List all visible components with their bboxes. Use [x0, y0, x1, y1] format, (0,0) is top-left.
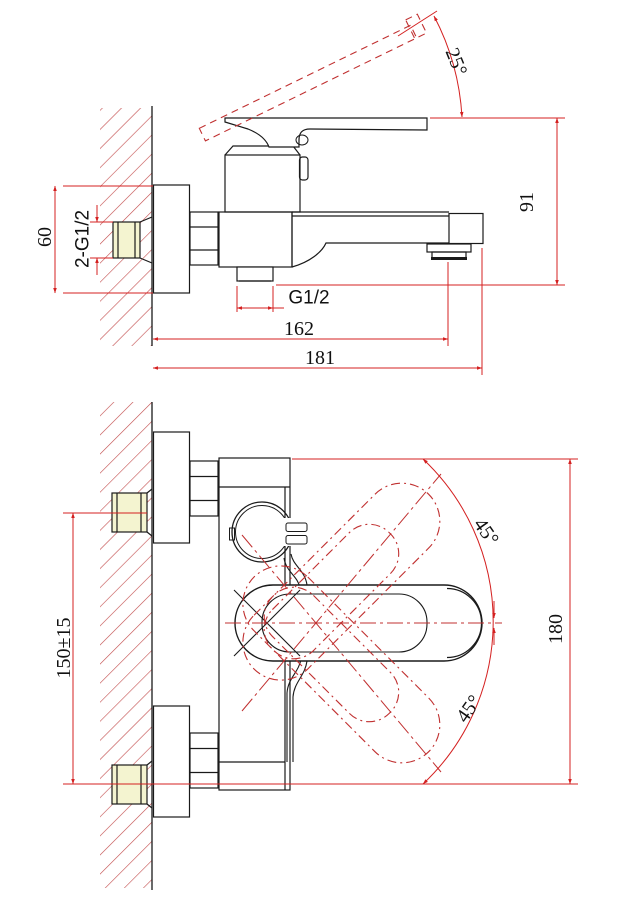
- dim-label-181: 181: [305, 348, 335, 368]
- dim-label-g12: G1/2: [288, 289, 329, 308]
- dim-label-2-g12: 2-G1/2: [74, 210, 93, 268]
- dim-label-162: 162: [284, 319, 314, 339]
- mounting-nut-upper: [190, 461, 218, 516]
- dim-label-91: 91: [517, 192, 537, 212]
- aerator: [427, 244, 471, 259]
- escutcheon-plate-lower: [154, 706, 190, 817]
- mixer-cartridge: [225, 155, 300, 212]
- escutcheon-plate-upper: [154, 432, 190, 543]
- shower-outlet: [237, 267, 273, 281]
- mounting-nut-lower: [190, 733, 218, 788]
- mounting-nut: [190, 212, 218, 265]
- faucet-body: [219, 146, 308, 267]
- wall-hatching-front: [100, 402, 152, 888]
- drawing-sheet: 25° 91 60 2-G1/2 G1/2 162 181 45° 45° 18…: [0, 0, 621, 899]
- technical-drawing-canvas: [0, 0, 621, 899]
- dim-label-180: 180: [546, 614, 566, 644]
- escutcheon-plate: [154, 185, 190, 293]
- dim-label-150: 150±15: [54, 618, 74, 679]
- dim-label-60: 60: [35, 227, 55, 247]
- lever-handle-side: [225, 118, 427, 147]
- cartridge-clip: [300, 157, 309, 180]
- front-view-drawing: [63, 402, 578, 890]
